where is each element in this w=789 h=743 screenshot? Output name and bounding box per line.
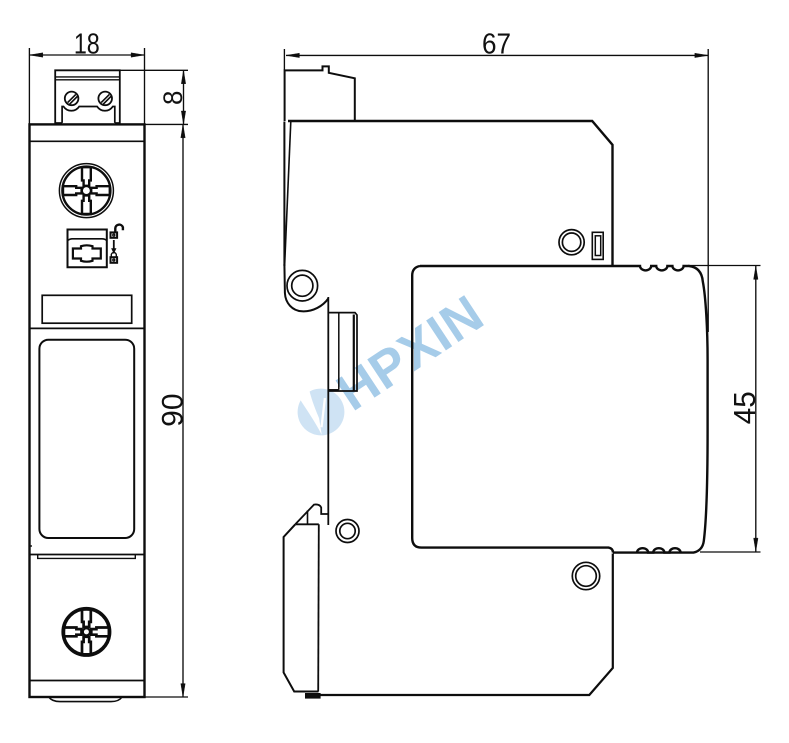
svg-text:18: 18: [74, 27, 100, 60]
svg-text:90: 90: [156, 393, 189, 426]
svg-text:67: 67: [482, 27, 511, 60]
svg-text:45: 45: [729, 391, 762, 424]
svg-text:8: 8: [158, 91, 189, 105]
